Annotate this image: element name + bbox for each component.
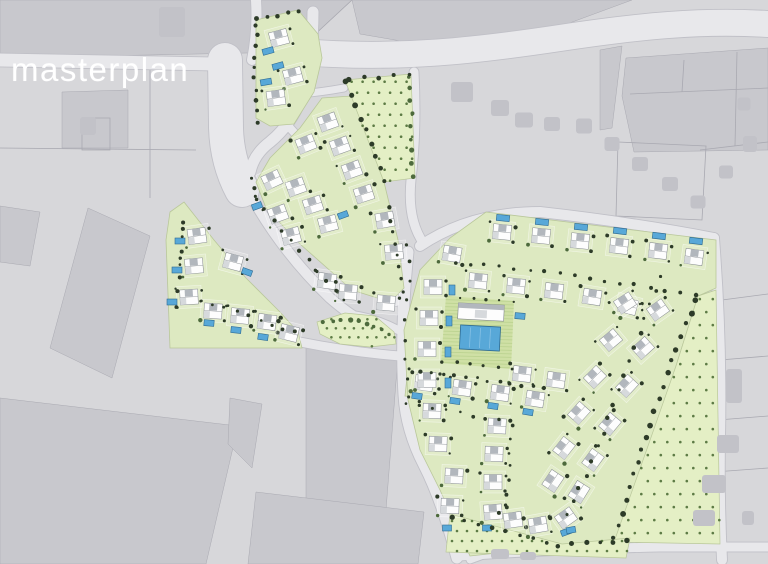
villa: [414, 307, 443, 329]
street-tree: [486, 380, 489, 383]
street-tree: [255, 109, 259, 113]
park-tree-dot: [616, 550, 619, 553]
street-tree: [321, 320, 325, 324]
street-tree: [180, 250, 184, 254]
park-tree-dot: [666, 493, 669, 496]
park-tree-dot: [461, 540, 464, 543]
park-tree-dot: [679, 441, 682, 444]
street-tree: [692, 297, 698, 303]
context-building: [491, 100, 509, 116]
street-tree: [396, 254, 399, 257]
street-tree: [178, 275, 182, 279]
park-tree-dot: [705, 467, 708, 470]
park-tree-dot: [383, 168, 386, 171]
street-tree: [411, 174, 416, 179]
street-tree: [482, 263, 486, 267]
street-tree: [408, 124, 412, 128]
street-tree: [464, 375, 468, 379]
street-tree: [620, 511, 626, 517]
street-tree: [659, 275, 662, 278]
garden-tree-dot: [413, 357, 417, 361]
park-tree-dot: [361, 124, 364, 127]
street-tree: [665, 370, 670, 375]
park-tree-dot: [653, 467, 656, 470]
street-tree: [252, 56, 256, 60]
street-tree: [628, 485, 632, 489]
street-tree: [694, 293, 698, 297]
street-tree: [392, 73, 396, 77]
park-tree-dot: [367, 113, 370, 116]
street-tree: [519, 384, 523, 388]
park-tree-dot: [699, 350, 702, 353]
villa: [603, 233, 635, 258]
street-tree: [181, 235, 184, 238]
park-tree-dot: [400, 91, 403, 94]
park-tree-dot: [712, 350, 715, 353]
pool: [515, 313, 525, 320]
park-tree-dot: [666, 467, 669, 470]
street-tree: [406, 377, 409, 380]
street-tree: [275, 14, 280, 19]
street-tree: [211, 304, 214, 307]
pool: [258, 333, 269, 340]
park-tree-dot: [621, 532, 624, 535]
park-tree-dot: [362, 327, 365, 330]
villa: [483, 414, 513, 438]
street-tree: [490, 525, 495, 530]
park-tree-dot: [660, 532, 663, 535]
context-building: [702, 475, 726, 493]
street-tree: [654, 289, 658, 293]
street-tree: [469, 263, 472, 266]
street-tree: [598, 541, 602, 545]
street-tree: [408, 73, 412, 77]
street-tree: [611, 536, 615, 540]
street-tree: [678, 334, 683, 339]
context-building: [515, 113, 533, 128]
street-tree: [504, 493, 508, 497]
street-tree: [409, 147, 414, 152]
pool: [204, 320, 214, 327]
villa: [575, 284, 608, 310]
street-tree: [331, 320, 335, 324]
street-tree: [364, 127, 368, 131]
street-tree: [405, 402, 408, 405]
street-tree: [661, 385, 665, 389]
street-tree: [290, 239, 293, 242]
street-tree: [624, 538, 629, 543]
street-tree: [256, 121, 260, 125]
park-tree-dot: [673, 532, 676, 535]
street-tree: [393, 242, 396, 245]
villa: [423, 432, 453, 455]
street-tree: [531, 536, 535, 540]
street-tree: [444, 294, 448, 298]
street-tree: [315, 270, 318, 273]
park-tree-dot: [344, 327, 347, 330]
park-tree-dot: [375, 336, 378, 339]
park-tree-dot: [411, 135, 414, 138]
park-tree-dot: [378, 113, 381, 116]
street-tree: [365, 322, 370, 327]
park-tree-dot: [699, 376, 702, 379]
street-tree: [404, 339, 407, 342]
park-tree-dot: [357, 336, 360, 339]
villa: [413, 338, 442, 361]
villa: [463, 269, 493, 295]
villa: [541, 367, 571, 393]
park-tree-dot: [679, 519, 682, 522]
park-tree-dot: [712, 402, 715, 405]
park-tree-dot: [393, 336, 396, 339]
street-tree: [408, 260, 412, 264]
park-tree-dot: [653, 493, 656, 496]
street-tree: [476, 376, 479, 379]
street-tree: [181, 221, 185, 225]
street-tree: [378, 166, 383, 171]
street-tree: [617, 524, 621, 528]
park-tree-dot: [627, 519, 630, 522]
park-tree-dot: [673, 480, 676, 483]
street-tree: [362, 75, 366, 79]
street-tree: [293, 329, 297, 333]
street-tree: [505, 505, 509, 509]
park-tree-dot: [335, 327, 338, 330]
street-tree: [255, 33, 259, 37]
park-tree-dot: [456, 550, 459, 553]
street-tree: [387, 333, 390, 336]
context-building: [743, 136, 757, 152]
park-tree-dot: [367, 135, 370, 138]
park-tree-dot: [699, 298, 702, 301]
community-pool: [459, 325, 500, 351]
park-tree-dot: [394, 168, 397, 171]
street-tree: [511, 368, 514, 371]
street-tree: [369, 142, 374, 147]
park-tree-dot: [466, 530, 469, 533]
park-tree-dot: [394, 102, 397, 105]
park-tree-dot: [705, 415, 708, 418]
street-tree: [376, 76, 381, 81]
park-tree-dot: [640, 493, 643, 496]
context-building: [520, 552, 536, 560]
street-tree: [281, 327, 285, 331]
street-tree: [418, 404, 421, 407]
street-tree: [405, 298, 408, 301]
villa: [260, 85, 291, 111]
park-tree-dot: [372, 124, 375, 127]
street-tree: [584, 540, 589, 545]
park-tree-dot: [640, 467, 643, 470]
park-tree-dot: [712, 506, 715, 509]
street-tree: [559, 271, 562, 274]
street-tree: [512, 267, 515, 270]
street-tree: [431, 407, 434, 410]
park-tree-dot: [686, 402, 689, 405]
park-tree-dot: [699, 454, 702, 457]
street-tree: [605, 416, 609, 420]
street-tree: [352, 102, 358, 108]
street-tree: [498, 299, 500, 301]
park-tree-dot: [405, 146, 408, 149]
park-tree-dot: [389, 179, 392, 182]
street-tree: [509, 438, 512, 441]
street-tree: [669, 358, 673, 362]
street-tree: [255, 198, 259, 202]
park-tree-dot: [541, 540, 544, 543]
pool: [574, 223, 588, 230]
villa: [480, 443, 509, 467]
park-tree-dot: [556, 550, 559, 553]
street-tree: [529, 269, 532, 272]
park-tree-dot: [481, 540, 484, 543]
street-tree: [644, 435, 649, 440]
park-tree-dot: [705, 441, 708, 444]
street-tree: [631, 472, 635, 476]
street-tree: [280, 229, 283, 232]
street-tree: [387, 205, 391, 209]
park-tree-dot: [471, 520, 474, 523]
garden-tree-dot: [439, 325, 443, 329]
street-tree: [174, 305, 178, 309]
park-tree-dot: [640, 519, 643, 522]
garden-tree-dot: [438, 341, 442, 345]
pool: [496, 214, 510, 221]
street-tree: [663, 289, 667, 293]
street-tree: [409, 161, 414, 166]
street-tree: [338, 318, 342, 322]
park-tree-dot: [471, 540, 474, 543]
context-building: [662, 177, 678, 191]
park-tree-dot: [660, 506, 663, 509]
street-tree: [482, 364, 485, 367]
park-tree-dot: [394, 146, 397, 149]
street-tree: [297, 9, 301, 13]
park-tree-dot: [666, 519, 669, 522]
clubhouse-building: [458, 303, 505, 321]
street-tree: [576, 486, 580, 490]
street-tree: [262, 207, 266, 211]
park-tree-dot: [705, 311, 708, 314]
pool: [172, 267, 182, 273]
park-tree-dot: [383, 124, 386, 127]
park-tree-dot: [679, 363, 682, 366]
street-tree: [499, 380, 503, 384]
park-tree-dot: [653, 519, 656, 522]
street-tree: [639, 331, 644, 336]
context-field: [306, 348, 398, 510]
street-tree: [175, 289, 179, 293]
park-tree-dot: [378, 157, 381, 160]
park-tree-dot: [660, 428, 663, 431]
pool: [566, 526, 576, 533]
park-tree-dot: [692, 493, 695, 496]
street-tree: [459, 411, 462, 414]
street-tree: [286, 10, 290, 14]
park-tree-dot: [660, 480, 663, 483]
road: [225, 60, 242, 190]
street-tree: [388, 219, 392, 223]
park-tree-dot: [686, 532, 689, 535]
street-tree: [483, 417, 487, 421]
context-building: [605, 137, 620, 151]
park-tree-dot: [566, 550, 569, 553]
park-tree-dot: [383, 102, 386, 105]
pool: [167, 299, 177, 305]
park-tree-dot: [586, 550, 589, 553]
street-tree: [418, 369, 422, 373]
street-tree: [513, 301, 515, 303]
street-tree: [272, 218, 276, 222]
pool: [446, 316, 452, 326]
street-tree: [380, 328, 384, 332]
garden-tree-dot: [503, 489, 506, 492]
street-tree: [602, 432, 606, 436]
pool: [450, 397, 461, 404]
street-tree: [477, 523, 481, 527]
street-tree: [657, 397, 662, 402]
villa: [487, 220, 519, 246]
villa: [421, 276, 448, 298]
street-tree: [455, 360, 459, 364]
street-tree: [250, 177, 253, 180]
street-tree: [545, 541, 549, 545]
street-tree: [508, 452, 511, 455]
park-tree-dot: [692, 415, 695, 418]
park-tree-dot: [666, 415, 669, 418]
villa: [225, 304, 256, 329]
park-tree-dot: [679, 493, 682, 496]
context-building: [717, 435, 739, 453]
park-tree-dot: [405, 124, 408, 127]
park-tree-dot: [718, 519, 721, 522]
street-tree: [408, 367, 411, 370]
park-tree-dot: [531, 540, 534, 543]
street-tree: [358, 117, 363, 122]
park-tree-dot: [686, 454, 689, 457]
park-tree-dot: [712, 376, 715, 379]
street-tree: [610, 403, 615, 408]
street-tree: [639, 448, 643, 452]
street-tree: [588, 277, 592, 281]
park-tree-dot: [692, 389, 695, 392]
pool: [488, 402, 499, 409]
pool: [449, 285, 455, 295]
street-tree: [473, 297, 476, 300]
park-tree-dot: [673, 402, 676, 405]
pool: [535, 218, 549, 225]
park-tree-dot: [361, 80, 364, 83]
park-tree-dot: [476, 550, 479, 553]
street-tree: [621, 373, 626, 378]
street-tree: [532, 384, 535, 387]
street-tree: [445, 408, 448, 411]
park-tree-dot: [536, 550, 539, 553]
street-tree: [200, 300, 203, 303]
street-tree: [651, 408, 657, 414]
street-tree: [409, 280, 412, 283]
street-tree: [179, 263, 182, 266]
street-tree: [334, 289, 338, 293]
street-tree: [503, 529, 507, 533]
street-tree: [507, 478, 510, 481]
villa: [417, 399, 447, 422]
context-building: [693, 510, 715, 526]
park-tree-dot: [372, 102, 375, 105]
street-tree: [440, 360, 443, 363]
street-tree: [253, 66, 256, 69]
street-tree: [556, 544, 561, 549]
street-tree: [518, 534, 522, 538]
community-centre: [438, 296, 516, 372]
street-tree: [403, 358, 406, 361]
villa: [370, 291, 401, 317]
street-tree: [462, 519, 466, 523]
park-tree-dot: [699, 402, 702, 405]
park-tree-dot: [378, 135, 381, 138]
park-tree-dot: [712, 324, 715, 327]
street-tree: [632, 345, 637, 350]
park-tree-dot: [647, 506, 650, 509]
street-tree: [252, 75, 256, 79]
street-tree: [252, 186, 256, 190]
park-tree-dot: [372, 80, 375, 83]
park-tree-dot: [394, 80, 397, 83]
park-tree-dot: [371, 345, 374, 348]
street-tree: [399, 277, 402, 280]
pool: [445, 347, 451, 357]
pool: [175, 238, 185, 244]
park-tree-dot: [699, 480, 702, 483]
park-tree-dot: [606, 550, 609, 553]
street-tree: [497, 264, 500, 267]
garden-tree-dot: [414, 307, 417, 310]
park-tree-dot: [348, 336, 351, 339]
park-tree-dot: [699, 506, 702, 509]
park-tree-dot: [596, 550, 599, 553]
villa: [565, 229, 596, 255]
street-tree: [617, 388, 620, 391]
street-tree: [407, 395, 410, 398]
street-tree: [372, 325, 376, 329]
park-tree-dot: [366, 336, 369, 339]
park-tree-dot: [361, 102, 364, 105]
street-tree: [511, 424, 515, 428]
park-tree-dot: [476, 530, 479, 533]
park-tree-dot: [400, 135, 403, 138]
park-tree-dot: [353, 327, 356, 330]
context-field: [0, 398, 238, 564]
park-tree-dot: [692, 337, 695, 340]
park-tree-dot: [626, 550, 629, 553]
garden-tree-dot: [438, 372, 441, 375]
park-tree-dot: [339, 336, 342, 339]
park-tree-dot: [491, 540, 494, 543]
park-tree-dot: [389, 91, 392, 94]
park-tree-dot: [496, 530, 499, 533]
street-tree: [382, 179, 386, 183]
street-tree: [373, 154, 378, 159]
park-tree-dot: [673, 454, 676, 457]
street-tree: [308, 258, 312, 262]
street-tree: [324, 279, 328, 283]
context-building: [80, 117, 96, 135]
street-tree: [430, 371, 433, 374]
pool: [689, 237, 703, 245]
villa: [178, 254, 207, 279]
park-tree-dot: [389, 113, 392, 116]
street-tree: [508, 382, 512, 386]
